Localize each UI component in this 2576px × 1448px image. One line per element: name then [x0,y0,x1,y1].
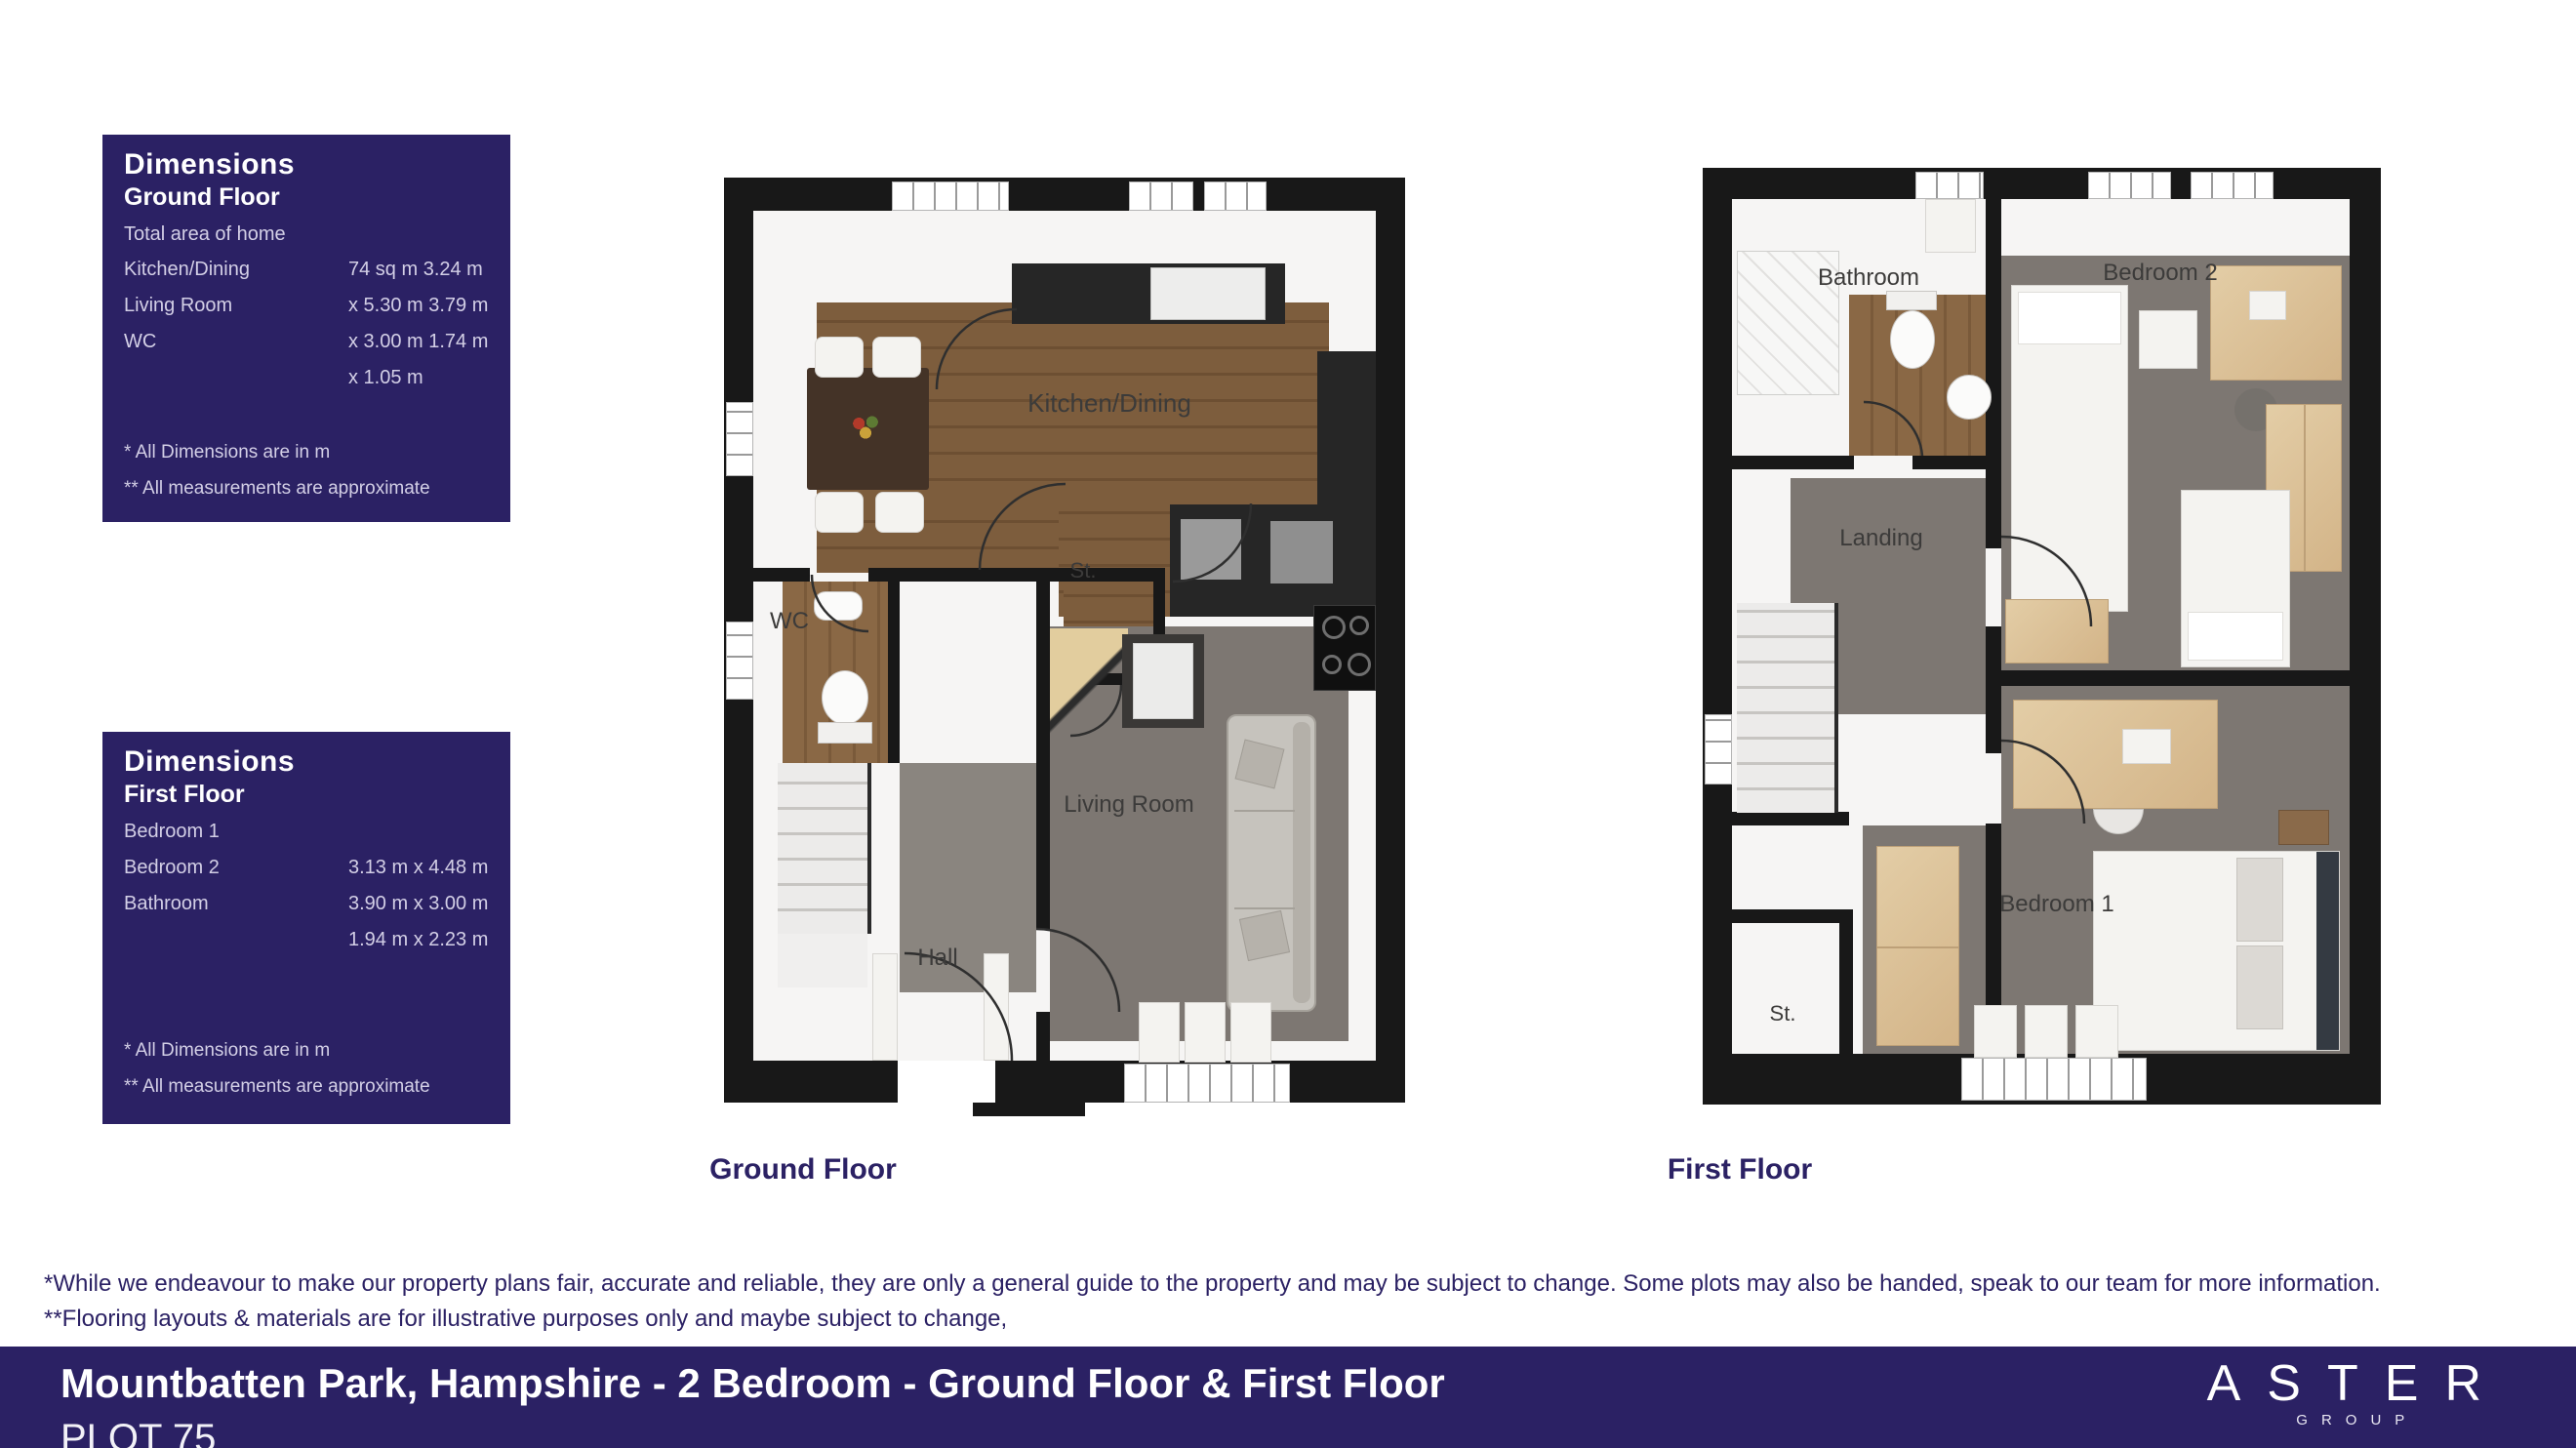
room-label-kitchen-dining: Kitchen/Dining [992,388,1227,419]
wall-segment [1986,168,2001,548]
room-label-storage: St. [1054,558,1112,583]
dim-label: Kitchen/Dining [124,259,250,281]
sofa-pillow [1239,910,1290,961]
room-label-wc: WC [760,608,819,635]
laptop [2122,729,2171,764]
patio-window [1124,1064,1290,1103]
window [2191,172,2274,199]
hob [1313,605,1376,691]
room-label-bedroom2: Bedroom 2 [2063,260,2258,287]
brand-name: ASTER [2207,1358,2508,1409]
dim-value: 3.13 m x 4.48 m [348,857,488,879]
window [1915,172,1984,199]
window [2088,172,2171,199]
patio-door-panel [1230,1002,1271,1063]
stairs [1737,603,1834,813]
dimensions-panel-ground: Dimensions Ground Floor Total area of ho… [102,135,510,522]
wall-segment [1732,812,1849,825]
dim-value: x 5.30 m 3.79 m [348,295,488,317]
toilet [822,670,868,725]
dining-chair [875,492,924,533]
dim-label: Bedroom 2 [124,857,220,879]
wall-segment [753,568,810,582]
patio-door-panel [1974,1005,2017,1058]
desk [2013,700,2218,809]
dim-value: 1.94 m x 2.23 m [348,929,488,951]
toilet-cistern [1886,291,1937,310]
appliance [1181,519,1241,580]
dining-chair [872,337,921,378]
wall-segment [1986,626,2001,753]
patio-door-panel [1185,1002,1226,1063]
dining-chair [815,492,864,533]
wall-segment [1912,456,1986,469]
table-centerpiece [849,412,882,441]
dim-value: x 1.05 m [348,367,423,389]
patio-door-panel [1139,1002,1180,1063]
footnote-dimensions: * All Dimensions are in m [124,1040,330,1062]
patio-door-panel [2075,1005,2118,1058]
stair-rail [1834,603,1838,813]
stair-rail [867,763,871,934]
dimensions-panel-first: Dimensions First Floor Bedroom 1 Bedroom… [102,732,510,1124]
dim-value: 3.90 m x 3.00 m [348,893,488,915]
disclaimer-line-2: **Flooring layouts & materials are for i… [44,1302,2542,1336]
wall-segment [888,582,900,763]
wall-segment [1703,168,1732,1105]
disclaimer-line-1: *While we endeavour to make our property… [44,1267,2542,1301]
room-label-living-room: Living Room [1022,791,1236,819]
panel-title: Dimensions [124,148,489,181]
ground-floor-caption: Ground Floor [657,1153,949,1187]
toilet-cistern [818,722,872,744]
footer-bar: Mountbatten Park, Hampshire - 2 Bedroom … [0,1347,2576,1448]
wall-segment [2001,670,2350,686]
room-label-landing: Landing [1803,525,1959,552]
bedside-table [2139,310,2197,369]
ground-floor-plan: Kitchen/Dining WC St. Hall Living Room [724,178,1405,1103]
appliance [1270,521,1333,583]
bed [2181,490,2290,667]
window [726,402,753,476]
dim-label: WC [124,331,156,353]
wall-segment [1732,909,1853,923]
dim-label: Total area of home [124,223,286,246]
room-label-storage: St. [1749,1001,1817,1026]
stairs [778,763,867,934]
room-label-hall: Hall [879,945,996,972]
panel-title: Dimensions [124,745,489,779]
kitchen-sink [1150,267,1266,320]
footnote-measurements: ** All measurements are approximate [124,478,430,500]
toilet [1890,310,1935,369]
room-label-bathroom: Bathroom [1791,264,1947,292]
dim-value: 74 sq m 3.24 m [348,259,483,281]
dim-label: Bathroom [124,893,209,915]
window-bay [1925,199,1976,253]
bathroom-basin [1947,375,1992,420]
chest-of-drawers [2005,599,2109,664]
brand-subtitle: GROUP [2207,1412,2508,1428]
wardrobe [1876,846,1959,1046]
front-door-opening [898,1061,995,1103]
window [1705,714,1732,784]
first-floor-caption: First Floor [1593,1153,1886,1187]
panel-subtitle: First Floor [124,781,489,809]
room-label-bedroom1: Bedroom 1 [1959,891,2154,918]
wall-segment [2350,168,2381,1105]
dining-chair [815,337,864,378]
wall-segment [1036,1012,1050,1061]
window [1204,181,1267,211]
panel-subtitle: Ground Floor [124,183,489,212]
window [892,181,1009,211]
dim-value: x 3.00 m 1.74 m [348,331,488,353]
footer-title: Mountbatten Park, Hampshire - 2 Bedroom … [60,1360,1445,1407]
patio-door-panel [2025,1005,2068,1058]
wall-segment [1036,582,1050,929]
footnote-measurements: ** All measurements are approximate [124,1076,430,1098]
wall-segment [1732,456,1854,469]
page: { "dimensions_ground": { "title": "Dimen… [0,0,2576,1448]
nightstand [2278,810,2329,845]
window [1129,181,1193,211]
double-bed [2093,851,2340,1051]
wall-segment [868,568,1165,582]
stair-landing [778,934,867,987]
bed [2011,285,2128,612]
plot-number: PLOT 75 [60,1417,216,1448]
laptop [2249,291,2286,320]
first-floor-plan: Bathroom Bedroom 2 Landing St. Bedroom 1 [1703,168,2381,1105]
wc-basin [814,591,863,621]
dim-label: Bedroom 1 [124,821,220,843]
wall-segment [1839,923,1853,1054]
stair-bulkhead [1050,628,1128,745]
window [726,622,753,700]
aster-group-logo: ASTER GROUP [2207,1358,2508,1428]
tv [1133,643,1193,719]
dim-label: Living Room [124,295,232,317]
footnote-dimensions: * All Dimensions are in m [124,442,330,463]
window [1961,1058,2147,1101]
